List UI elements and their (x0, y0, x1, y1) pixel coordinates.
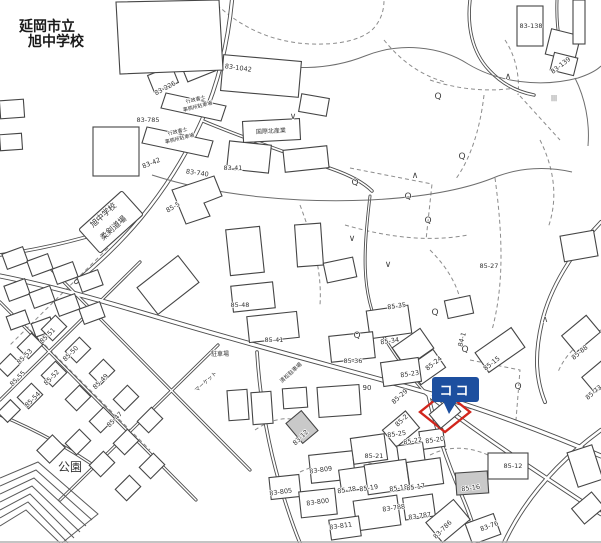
map-label: 駐車場 (211, 350, 229, 358)
building (0, 400, 20, 423)
building (137, 256, 199, 315)
building (0, 133, 23, 150)
building (27, 254, 53, 277)
vegetation-symbol: ||| (551, 95, 557, 102)
vegetation-symbol: Q (351, 178, 358, 188)
map-label: 85-78 (337, 485, 357, 496)
building (2, 247, 28, 270)
building (299, 94, 330, 117)
building (251, 391, 273, 424)
vegetation-symbol: Q (424, 216, 431, 226)
building (37, 435, 65, 463)
vegetation-symbol: Q (353, 331, 360, 341)
map-label: 85-29 (390, 387, 409, 406)
building (113, 429, 138, 454)
map-label: 90 (363, 384, 372, 392)
building (113, 385, 138, 410)
school-building (116, 0, 223, 74)
map-label: 延岡市立 (18, 18, 75, 35)
building (226, 226, 265, 275)
map-label: 83-42 (141, 156, 162, 170)
map-canvas[interactable]: QQQQQQQQQ∧∧∧∨∨∨||| 延岡市立旭中学校旭中学校柔剣道場公園83-… (0, 0, 601, 543)
map-label: 85-48 (231, 301, 250, 309)
building (139, 453, 164, 478)
vegetation-symbol: ∨ (385, 260, 392, 270)
map-label: 85-36 (344, 357, 363, 365)
vegetation-symbol: ∨ (290, 112, 297, 122)
map-label: マーケット (193, 370, 218, 394)
vegetation-symbol: Q (431, 308, 438, 318)
building (89, 451, 114, 476)
map-label: 83-785 (136, 116, 159, 124)
vegetation-symbol: Q (404, 192, 411, 202)
building (227, 389, 249, 420)
vegetation-symbol: ∧ (412, 171, 419, 181)
building (295, 223, 324, 267)
map-label: 85-17 (406, 482, 426, 493)
map-label: 国際北産業 (256, 126, 286, 136)
building (282, 387, 307, 409)
building (115, 475, 140, 500)
building (283, 146, 329, 172)
vegetation-symbol: Q (434, 92, 441, 102)
map-label: 清松駐車場 (278, 360, 304, 385)
building (323, 257, 357, 283)
building (573, 0, 585, 44)
building (560, 230, 598, 262)
building (221, 55, 302, 98)
building (137, 407, 162, 432)
map-label: 85-12 (504, 462, 523, 470)
map-label: 85-21 (365, 452, 384, 460)
map-label: 83-41 (224, 164, 243, 172)
building (52, 262, 78, 285)
vegetation-symbol: ∧ (542, 315, 549, 325)
vegetation-symbol: Q (514, 382, 521, 392)
map-label: 83-740 (185, 167, 209, 178)
vegetation-symbol: Q (458, 152, 465, 162)
vegetation-symbol: ∧ (505, 72, 512, 82)
map-viewport[interactable]: QQQQQQQQQ∧∧∧∨∨∨||| 延岡市立旭中学校旭中学校柔剣道場公園83-… (0, 0, 601, 543)
building (317, 385, 361, 418)
map-label: 旭中学校 (27, 33, 85, 50)
building (93, 127, 139, 176)
building (4, 279, 30, 302)
building (77, 270, 103, 293)
vegetation-symbol: ∨ (349, 234, 356, 244)
map-label: 85-41 (265, 336, 284, 344)
building (0, 99, 25, 119)
building (444, 295, 473, 318)
map-label: 83-138 (519, 22, 542, 30)
map-label: 85-27 (480, 262, 499, 270)
map-label: 公園 (58, 460, 82, 474)
marker-label: ココ (439, 384, 471, 399)
park-steps (0, 462, 98, 543)
